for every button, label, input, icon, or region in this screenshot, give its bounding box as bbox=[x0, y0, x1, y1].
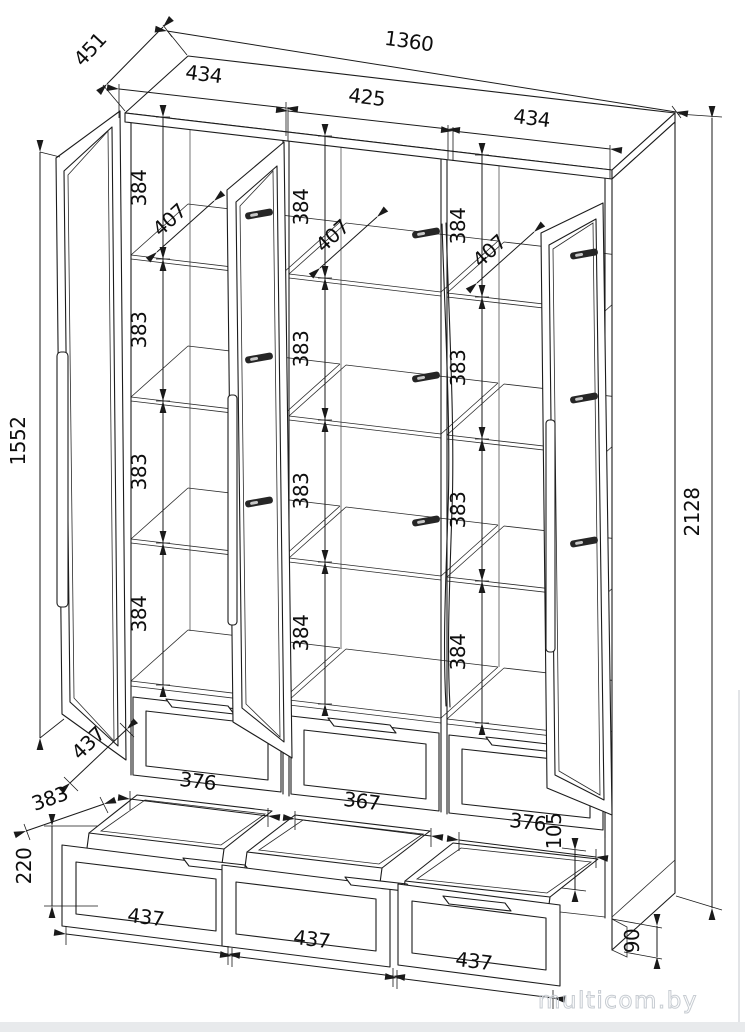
dim-section-width-2: 425 bbox=[347, 83, 386, 111]
dim-top-depth: 451 bbox=[69, 28, 112, 71]
dim-shelf-gap-l2: 383 bbox=[127, 312, 151, 349]
dim-shelf-gap-r3: 383 bbox=[446, 492, 470, 529]
dim-shelf-gap-m1: 384 bbox=[289, 189, 313, 226]
dim-section-width-3: 434 bbox=[512, 104, 551, 132]
dim-drawer-front-width-3: 437 bbox=[454, 947, 493, 975]
watermark-text: multicom.by bbox=[538, 988, 698, 1014]
dim-drawer-front-width-1: 437 bbox=[126, 903, 165, 931]
right-glass-door bbox=[541, 203, 612, 815]
dim-plinth-height: 90 bbox=[620, 929, 644, 953]
door-handle-left bbox=[57, 352, 68, 607]
dim-total-height: 2128 bbox=[680, 488, 704, 537]
cabinet-drawing-svg: 451 1360 434 425 434 384 383 383 384 407… bbox=[0, 0, 745, 1032]
door-handle-middle bbox=[228, 395, 237, 625]
dim-drawer-front-width-2: 437 bbox=[292, 925, 331, 953]
dim-drawer-front-height: 220 bbox=[12, 848, 36, 885]
furniture-dimension-drawing: 451 1360 434 425 434 384 383 383 384 407… bbox=[0, 0, 745, 1032]
middle-left-glass-door bbox=[227, 142, 292, 758]
dim-section-width-1: 434 bbox=[184, 60, 223, 88]
dim-shelf-gap-r2: 383 bbox=[446, 350, 470, 387]
dim-shelf-gap-m2: 383 bbox=[289, 331, 313, 368]
page-bottom-edge bbox=[0, 1022, 745, 1032]
dim-drawer-box-width-1: 376 bbox=[178, 767, 217, 795]
dim-shelf-gap-r1: 384 bbox=[446, 208, 470, 245]
door-handle-right bbox=[546, 420, 555, 652]
left-glass-door bbox=[56, 111, 126, 760]
dim-drawer-box-height: 105 bbox=[542, 813, 566, 850]
dim-top-width: 1360 bbox=[383, 26, 435, 57]
dim-drawer-box-width-2: 367 bbox=[342, 787, 381, 815]
dim-shelf-depth-middle: 407 bbox=[311, 215, 354, 257]
open-drawer-right bbox=[398, 843, 598, 986]
dim-shelf-gap-l4: 384 bbox=[127, 596, 151, 633]
dim-shelf-depth-right: 407 bbox=[468, 230, 511, 272]
dim-shelf-gap-l1: 384 bbox=[127, 170, 151, 207]
dim-shelf-gap-l3: 383 bbox=[127, 454, 151, 491]
dim-shelf-gap-m3: 383 bbox=[289, 473, 313, 510]
dim-shelf-gap-r4: 384 bbox=[446, 634, 470, 671]
dim-shelf-gap-m4: 384 bbox=[289, 615, 313, 652]
dim-door-height: 1552 bbox=[6, 417, 30, 466]
dim-drawer-box-depth: 383 bbox=[28, 781, 71, 816]
